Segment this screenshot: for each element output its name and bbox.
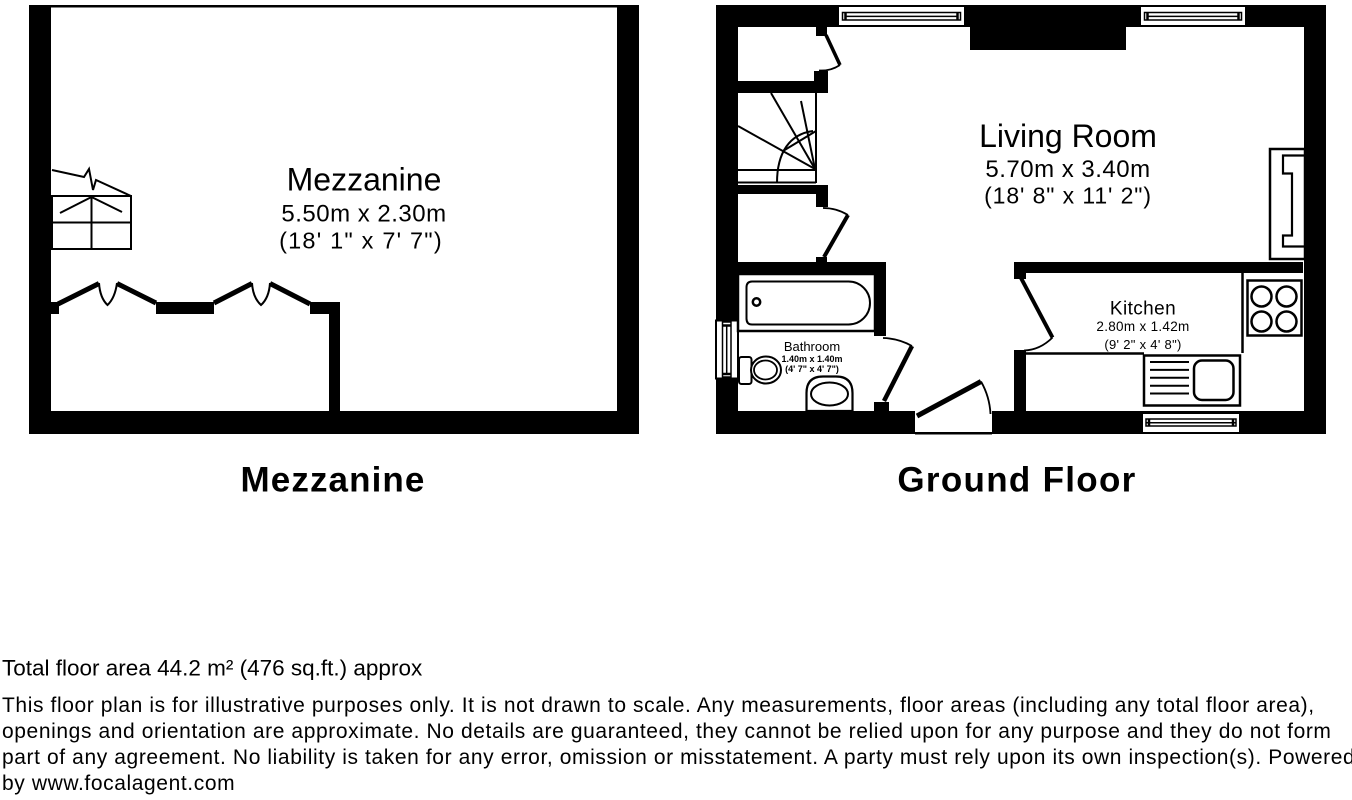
svg-text:(4' 7" x 4' 7"): (4' 7" x 4' 7") [785,364,839,374]
svg-text:Mezzanine: Mezzanine [287,162,442,198]
svg-text:This floor plan is for illustr: This floor plan is for illustrative purp… [2,694,1315,717]
svg-text:2.80m x 1.42m: 2.80m x 1.42m [1096,319,1189,334]
svg-text:Bathroom: Bathroom [784,339,840,354]
svg-text:Mezzanine: Mezzanine [241,461,426,500]
svg-text:Ground Floor: Ground Floor [897,461,1136,500]
svg-text:(18' 8" x 11' 2"): (18' 8" x 11' 2") [984,183,1152,209]
svg-text:Living Room: Living Room [979,118,1157,154]
svg-text:(18' 1" x 7' 7"): (18' 1" x 7' 7") [279,228,443,254]
svg-text:openings and orientation are a: openings and orientation are approximate… [2,720,1332,743]
svg-text:5.50m x 2.30m: 5.50m x 2.30m [281,201,446,228]
svg-text:part of any agreement. No liab: part of any agreement. No liability is t… [2,746,1352,769]
svg-text:Kitchen: Kitchen [1110,299,1176,320]
svg-text:1.40m x 1.40m: 1.40m x 1.40m [781,354,842,364]
svg-text:by www.focalagent.com: by www.focalagent.com [2,772,235,795]
svg-text:(9' 2" x 4' 8"): (9' 2" x 4' 8") [1104,337,1181,352]
svg-text:5.70m x 3.40m: 5.70m x 3.40m [985,156,1150,183]
svg-text:Total floor area 44.2 m² (476: Total floor area 44.2 m² (476 sq.ft.) ap… [2,656,423,681]
